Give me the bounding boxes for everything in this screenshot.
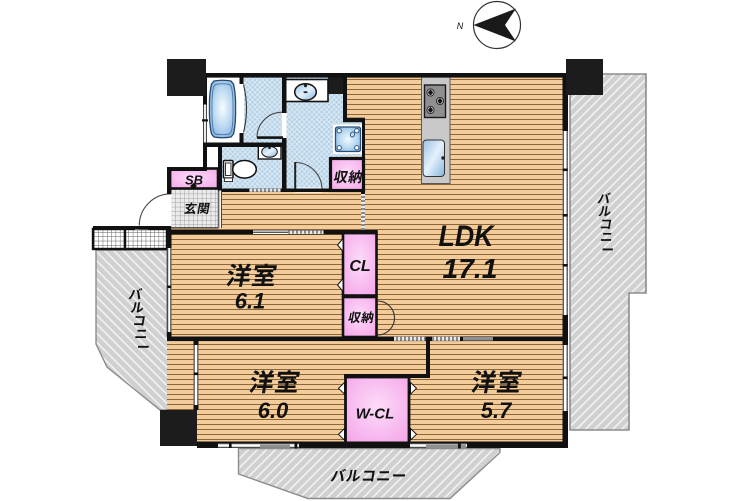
svg-text:W-CL: W-CL: [356, 406, 395, 423]
svg-text:6.0: 6.0: [258, 398, 289, 423]
svg-text:CL: CL: [349, 258, 370, 275]
svg-text:LDK: LDK: [439, 220, 496, 253]
svg-text:5.7: 5.7: [481, 398, 513, 423]
svg-text:6.1: 6.1: [235, 289, 266, 314]
svg-text:SB: SB: [185, 173, 203, 188]
svg-text:17.1: 17.1: [443, 253, 498, 284]
svg-text:N: N: [457, 21, 464, 31]
